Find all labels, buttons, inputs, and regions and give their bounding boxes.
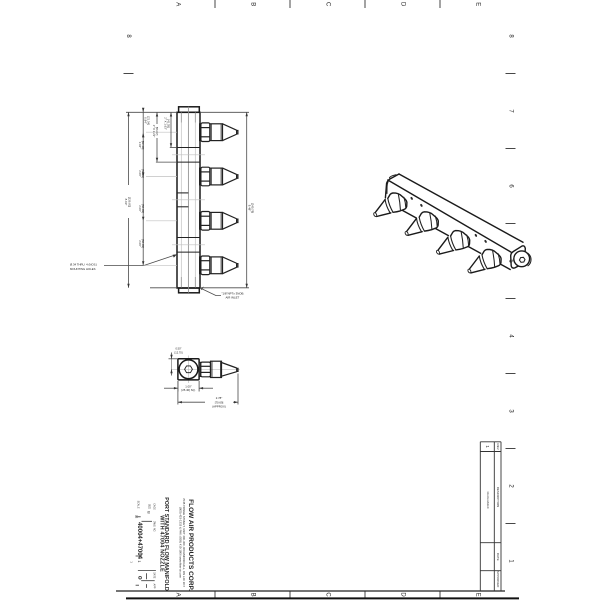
svg-text:[52.39]: [52.39] xyxy=(141,239,145,248)
svg-text:RE-RELEASED: RE-RELEASED xyxy=(486,492,489,509)
svg-text:DESCRIPTION: DESCRIPTION xyxy=(496,487,500,508)
svg-text:40004+47004: 40004+47004 xyxy=(136,522,142,560)
svg-text:[12.70]: [12.70] xyxy=(175,350,183,354)
svg-text:SIZE: SIZE xyxy=(148,504,150,510)
svg-text:SCALE: SCALE xyxy=(137,501,140,509)
svg-text:(APPROX): (APPROX) xyxy=(212,405,226,409)
svg-text:0.50": 0.50" xyxy=(176,347,182,351)
svg-text:B: B xyxy=(250,2,256,6)
svg-text:[226.82]: [226.82] xyxy=(127,197,131,208)
svg-text:WITH 47004 NOZZLE: WITH 47004 NOZZLE xyxy=(158,515,164,572)
svg-text:[56.07]: [56.07] xyxy=(155,127,159,136)
svg-text:DATE: DATE xyxy=(153,572,156,579)
svg-text:REV: REV xyxy=(496,444,500,450)
svg-text:2.78": 2.78" xyxy=(216,396,222,400)
svg-text:[21.34]: [21.34] xyxy=(146,116,150,125)
svg-text:C: C xyxy=(325,2,331,7)
svg-text:B: B xyxy=(250,593,256,597)
svg-text:D: D xyxy=(400,592,406,597)
svg-text:[52.39]: [52.39] xyxy=(141,141,145,150)
svg-text:8.93": 8.93" xyxy=(124,199,128,206)
svg-text:Ø.34 THRU. 4 (NOS.): Ø.34 THRU. 4 (NOS.) xyxy=(70,263,97,267)
svg-text:APP: APP xyxy=(153,584,156,589)
svg-text:E: E xyxy=(475,2,481,6)
svg-text:DWG. NO.: DWG. NO. xyxy=(152,521,154,532)
svg-text:[240.79]: [240.79] xyxy=(250,203,254,213)
svg-text:A: A xyxy=(175,593,181,597)
svg-text:CAGE: CAGE xyxy=(152,503,155,510)
svg-text:(905) 415-1315 & FAX: (905) 41: (905) 415-1315 & FAX: (905) 415-1806 www… xyxy=(178,507,182,579)
svg-text:D: D xyxy=(400,2,406,7)
svg-text:[52.39]: [52.39] xyxy=(141,169,145,178)
svg-text:MOUNTING HOLES: MOUNTING HOLES xyxy=(70,267,96,271)
svg-text:[25.40] SQ.: [25.40] SQ. xyxy=(181,388,195,392)
svg-text:E: E xyxy=(475,593,481,597)
svg-text:DATE: DATE xyxy=(496,553,500,561)
svg-text:AIR INLET: AIR INLET xyxy=(226,296,240,300)
svg-text:A: A xyxy=(175,2,181,6)
svg-text:C: C xyxy=(325,592,331,597)
svg-text:[41.35]: [41.35] xyxy=(167,119,171,128)
svg-text:APPROVED: APPROVED xyxy=(496,571,500,589)
svg-text:[52.39]: [52.39] xyxy=(141,204,145,213)
svg-text:FLOW AIR PRODUCTS CORP.: FLOW AIR PRODUCTS CORP. xyxy=(187,499,194,591)
